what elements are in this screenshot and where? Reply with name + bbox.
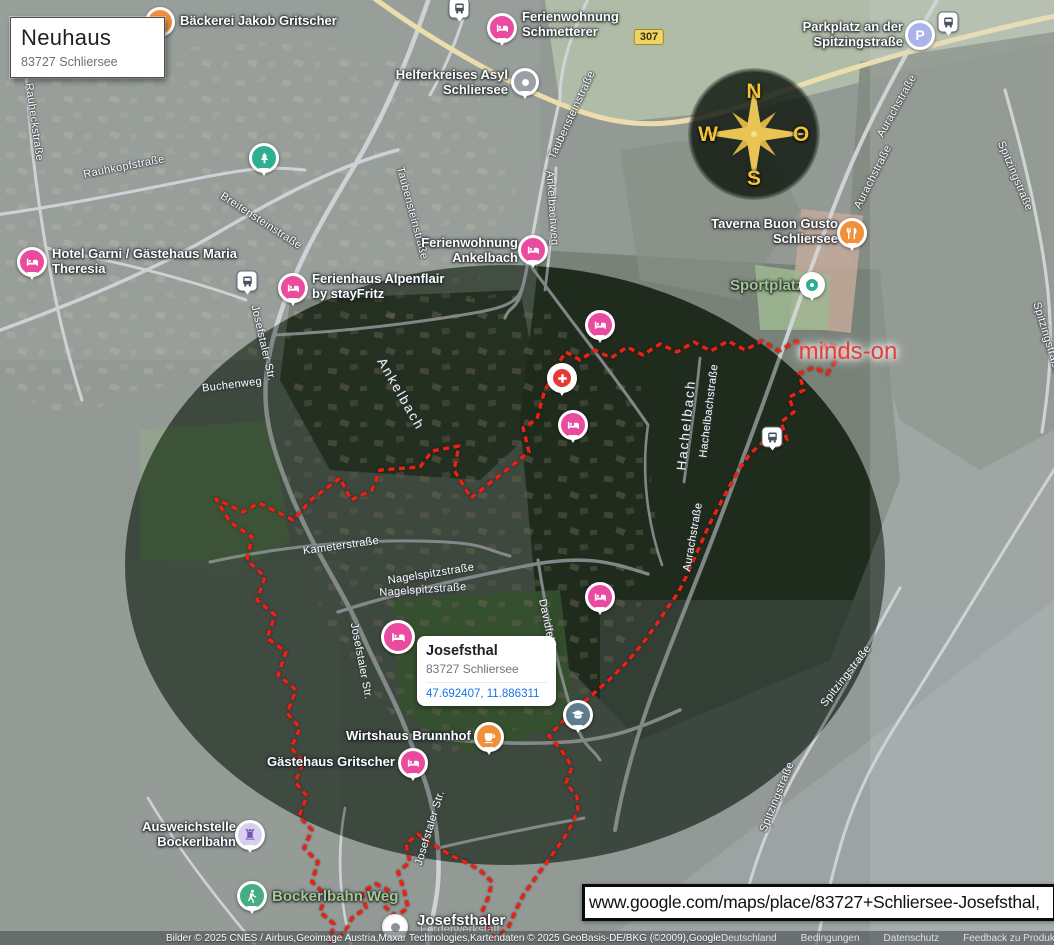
generic-pin-helferkreis[interactable] <box>511 68 539 96</box>
compass-west: W <box>698 123 718 147</box>
landmark-pin-bockerlbahn[interactable]: ♜ <box>235 820 265 850</box>
bus-stop-icon-1[interactable] <box>449 0 470 19</box>
poi-label-taverna[interactable]: Taverna Buon Gusto Schliersee <box>698 217 838 247</box>
compass-east: O <box>793 123 809 147</box>
route-shield-307: 307 <box>634 29 664 45</box>
park-tree-pin[interactable] <box>249 143 279 173</box>
lodging-pin-gritscher[interactable] <box>398 748 428 778</box>
lodging-pin-fewo-ankelbach[interactable] <box>518 235 548 265</box>
imagery-credits: Bilder © 2025 CNES / Airbus,Geoimage Aus… <box>166 933 721 944</box>
parking-icon[interactable]: P <box>905 20 935 50</box>
minds-on-watermark: minds-on <box>799 338 898 366</box>
restaurant-pin-taverna[interactable] <box>837 218 867 248</box>
link-datenschutz[interactable]: Datenschutz <box>884 933 940 944</box>
lodging-pin-schmetterer[interactable] <box>487 13 517 43</box>
card-subtitle: 83727 Schliersee <box>426 662 547 676</box>
compass-rose: N O S W <box>688 68 820 200</box>
compass-south: S <box>747 167 761 191</box>
poi-label-helferkreis[interactable]: Helferkreises Asyl Schliersee <box>368 68 508 98</box>
poi-label-parkplatz[interactable]: Parkplatz an der Spitzingstraße <box>753 20 903 50</box>
poi-label-fewo-ankelbach[interactable]: Ferienwohnung Ankelbach <box>403 236 518 266</box>
lodging-pin-alpenflair[interactable] <box>278 273 308 303</box>
lodging-pin-unlabeled-2[interactable] <box>558 410 588 440</box>
page-title: Neuhaus <box>21 25 154 51</box>
school-pin[interactable] <box>563 700 593 730</box>
url-overlay[interactable]: www.google.com/maps/place/83727+Schliers… <box>582 884 1054 921</box>
poi-label-sportplatz[interactable]: Sportplatz <box>730 277 803 294</box>
josefsthal-info-card[interactable]: Josefsthal 83727 Schliersee 47.692407, 1… <box>417 636 556 706</box>
poi-label-hotel-garni[interactable]: Hotel Garni / Gästehaus Maria Theresia <box>52 247 242 277</box>
sport-pin-sportplatz[interactable] <box>799 272 825 298</box>
satellite-basemap[interactable] <box>0 0 1054 945</box>
poi-label-gritscher[interactable]: Gästehaus Gritscher <box>267 755 395 770</box>
cafe-pin-wirtshaus[interactable] <box>474 722 504 752</box>
map-attribution-bar: Bilder © 2025 CNES / Airbus,Geoimage Aus… <box>0 931 1054 945</box>
poi-label-alpenflair[interactable]: Ferienhaus Alpenflair by stayFritz <box>312 272 452 302</box>
highlight-ellipse <box>125 265 885 865</box>
lodging-pin-hotel-garni[interactable] <box>17 247 47 277</box>
link-feedback[interactable]: Feedback zu Produkt(en) <box>963 933 1054 944</box>
poi-label-bockerlbahn-weg[interactable]: Bockerlbahn Weg <box>272 888 398 905</box>
bus-stop-icon-2[interactable] <box>938 12 959 33</box>
lodging-pin-unlabeled-1[interactable] <box>585 310 615 340</box>
bus-stop-icon-3[interactable] <box>237 271 258 292</box>
lodging-pin-unlabeled-3[interactable] <box>585 582 615 612</box>
page-subtitle: 83727 Schliersee <box>21 55 154 69</box>
coordinates-link[interactable]: 47.692407, 11.886311 <box>426 688 547 700</box>
bus-stop-icon-4[interactable] <box>762 427 783 448</box>
hiking-pin-bockerlbahn-weg[interactable] <box>237 881 267 911</box>
poi-label-ausweichstelle[interactable]: Ausweichstelle Bockerlbahn <box>121 820 236 850</box>
card-divider <box>426 682 547 683</box>
poi-label-baeckerei[interactable]: Bäckerei Jakob Gritscher <box>180 14 355 29</box>
url-text: www.google.com/maps/place/83727+Schliers… <box>589 892 1040 913</box>
google-maps-satellite-view[interactable]: Rauheckstraße Rauhkopfstraße Breitenstei… <box>0 0 1054 945</box>
lodging-pin-josefsthal[interactable] <box>381 620 415 654</box>
card-title: Josefsthal <box>426 643 547 659</box>
medical-cross-pin[interactable] <box>547 363 577 393</box>
poi-label-schmetterer[interactable]: Ferienwohnung Schmetterer <box>522 10 647 40</box>
place-title-card: Neuhaus 83727 Schliersee <box>10 17 165 78</box>
compass-north: N <box>746 80 761 104</box>
link-bedingungen[interactable]: Bedingungen <box>801 933 860 944</box>
link-deutschland[interactable]: Deutschland <box>721 933 777 944</box>
poi-label-wirtshaus[interactable]: Wirtshaus Brunnhof <box>346 729 471 744</box>
